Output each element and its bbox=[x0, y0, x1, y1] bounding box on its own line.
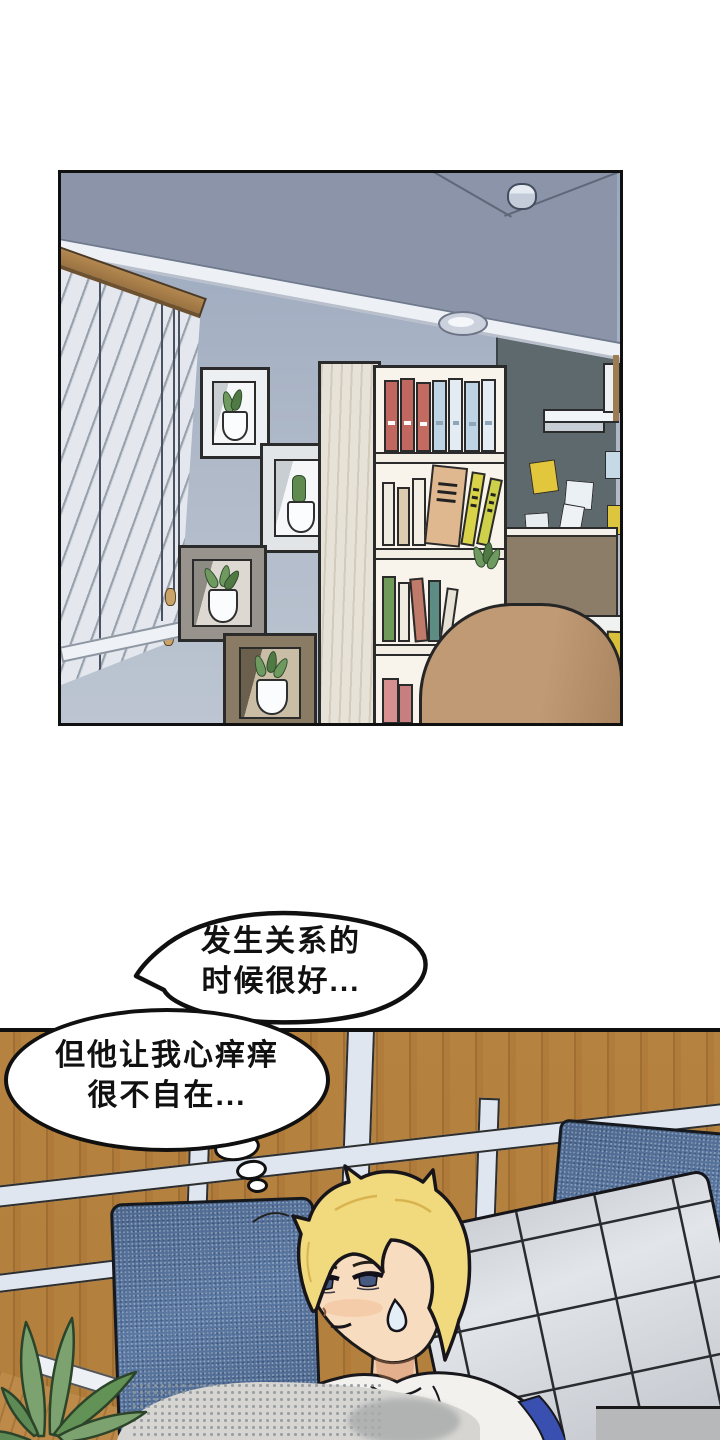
bubble-2-line-1: 但他让我心痒痒 bbox=[8, 1036, 326, 1076]
book-row bbox=[382, 468, 496, 546]
room-panel bbox=[58, 170, 623, 726]
cord-toggle bbox=[165, 588, 176, 606]
book bbox=[398, 684, 413, 724]
blind-cord bbox=[99, 267, 101, 679]
binder bbox=[416, 382, 431, 452]
binder bbox=[464, 381, 480, 452]
cube-opening bbox=[212, 381, 256, 445]
book bbox=[428, 580, 441, 642]
bookshelf-side-panel bbox=[318, 361, 381, 726]
bubble-2-line-2: 很不自在... bbox=[8, 1076, 326, 1116]
binder bbox=[384, 380, 399, 452]
floating-shelf-bracket bbox=[543, 421, 605, 433]
plant-pot bbox=[287, 501, 315, 533]
comic-page: 发生关系的 时候很好... 但他让我心痒痒 很不自在... bbox=[0, 0, 720, 1440]
sticky-note-yellow bbox=[529, 459, 559, 494]
blind-cord bbox=[173, 299, 175, 599]
book bbox=[382, 678, 399, 724]
book bbox=[409, 578, 429, 643]
blind-cord bbox=[178, 301, 180, 571]
bubble-1-line-2: 时候很好... bbox=[128, 962, 434, 1002]
binder bbox=[432, 380, 448, 452]
sticky-note-blue bbox=[605, 451, 623, 479]
plant-pot bbox=[256, 679, 288, 715]
bubble-1-line-1: 发生关系的 bbox=[128, 922, 434, 962]
smoke-detector bbox=[507, 183, 537, 210]
cube-opening bbox=[192, 559, 252, 627]
couch-base bbox=[596, 1406, 720, 1440]
plant-leaf bbox=[0, 1431, 30, 1440]
houseplant bbox=[0, 1284, 164, 1440]
cube-shelf-3 bbox=[178, 545, 267, 642]
cube-shelf-4 bbox=[223, 633, 317, 726]
plant-leaf bbox=[201, 566, 220, 590]
cactus bbox=[292, 475, 306, 503]
soft-shadow bbox=[348, 1398, 460, 1440]
frame-edge bbox=[613, 355, 619, 421]
book bbox=[397, 487, 409, 546]
book bbox=[382, 576, 396, 642]
binder bbox=[400, 378, 415, 452]
shelf-board bbox=[376, 452, 504, 464]
cube-opening bbox=[239, 647, 301, 719]
recessed-light bbox=[438, 311, 488, 336]
binder bbox=[481, 379, 496, 452]
cheek-shade bbox=[323, 1299, 383, 1317]
plant-pot bbox=[222, 411, 248, 441]
blind-cord bbox=[161, 291, 163, 621]
hair-strand bbox=[253, 1213, 289, 1222]
binder bbox=[448, 378, 463, 452]
binder-row bbox=[384, 378, 496, 452]
book bbox=[398, 582, 410, 642]
book bbox=[382, 482, 395, 546]
cube-opening bbox=[274, 459, 324, 537]
plant-leaf bbox=[229, 388, 245, 412]
halftone-shadow bbox=[131, 1382, 386, 1440]
thought-bubble-2: 但他让我心痒痒 很不自在... bbox=[4, 1008, 330, 1152]
plant-pot bbox=[208, 589, 238, 623]
